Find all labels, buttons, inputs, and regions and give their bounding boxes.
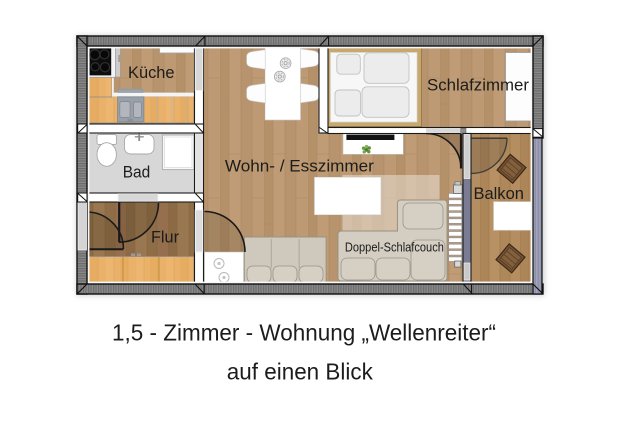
svg-text:Balkon: Balkon xyxy=(473,184,524,203)
svg-text:1,5 - Zimmer - Wohnung „Wellen: 1,5 - Zimmer - Wohnung „Wellenreiter“ xyxy=(112,319,496,345)
svg-text:Küche: Küche xyxy=(128,63,175,82)
svg-text:Schlafzimmer: Schlafzimmer xyxy=(427,75,529,94)
svg-text:Flur: Flur xyxy=(151,228,179,247)
svg-text:auf einen Blick: auf einen Blick xyxy=(227,358,373,384)
svg-text:Doppel-Schlafcouch: Doppel-Schlafcouch xyxy=(345,241,444,255)
svg-text:Wohn- / Esszimmer: Wohn- / Esszimmer xyxy=(225,156,374,175)
svg-text:Bad: Bad xyxy=(123,163,151,182)
